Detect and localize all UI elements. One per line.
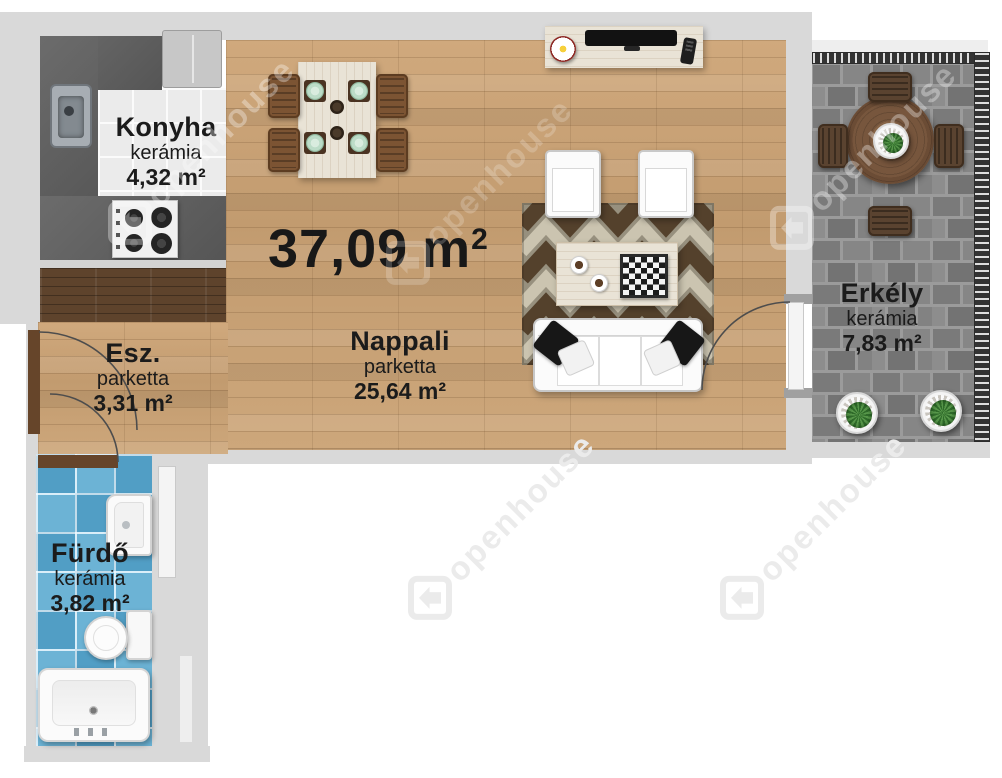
- total-area-unit: m: [422, 219, 471, 279]
- room-floor-type: kerámia: [20, 568, 160, 590]
- serving-bowl: [330, 100, 344, 114]
- stove-burner: [151, 233, 172, 254]
- plant-leaves: [930, 400, 956, 426]
- plant-leaves: [883, 133, 903, 153]
- room-floor-type: parketta: [63, 368, 203, 390]
- room-label-konyha: Konyha kerámia 4,32 m²: [96, 112, 236, 190]
- tv: [585, 30, 677, 46]
- wall-kitchen-bottom: [40, 260, 228, 268]
- openhouse-house-icon: [720, 576, 764, 620]
- room-label-furdo: Fürdő kerámia 3,82 m²: [20, 538, 160, 616]
- dining-chair: [268, 128, 300, 172]
- plant-leaves: [846, 402, 872, 428]
- sofa-seat-cushion: [599, 336, 641, 386]
- stove-burner: [151, 207, 172, 228]
- floor-plan: 37,09m2 Konyha kerámia 4,32 m² Nappali p…: [0, 0, 1002, 778]
- sofa: [533, 318, 703, 392]
- stove-burner: [125, 234, 143, 252]
- coffee-cup: [590, 274, 608, 292]
- plate: [350, 134, 368, 152]
- balcony-door-sill: [788, 302, 804, 390]
- bathroom-door-leaf: [38, 455, 118, 468]
- room-area: 3,31 m²: [63, 391, 203, 417]
- potted-plant-left: [836, 392, 878, 434]
- armchair-left: [545, 150, 601, 218]
- balcony-chair-east: [934, 124, 964, 168]
- wall-balcony-bottom: [810, 442, 990, 458]
- plate: [350, 82, 368, 100]
- room-name: Nappali: [330, 326, 470, 356]
- balcony-railing-right: [974, 52, 990, 442]
- tv-stand: [624, 46, 640, 51]
- dining-chair: [376, 128, 408, 172]
- table-plant-pot: [873, 123, 909, 159]
- stove-knobs: [116, 209, 120, 253]
- hallway-cabinet: [40, 268, 228, 322]
- bathtub-tap: [74, 728, 110, 736]
- room-floor-type: kerámia: [96, 142, 236, 164]
- plate: [306, 82, 324, 100]
- bathroom-wall-niche: [180, 656, 192, 742]
- toilet-bowl: [84, 616, 128, 660]
- room-name: Konyha: [96, 112, 236, 142]
- balcony-chair-south: [868, 206, 912, 236]
- entrance-door-leaf: [28, 330, 40, 434]
- balcony-chair-north: [868, 72, 912, 102]
- room-area: 3,82 m²: [20, 591, 160, 617]
- wall-left-upper: [0, 12, 40, 324]
- total-area-label: 37,09m2: [268, 218, 489, 280]
- room-label-esz: Esz. parketta 3,31 m²: [63, 338, 203, 416]
- room-floor-type: parketta: [330, 356, 470, 378]
- wall-livingroom-right-lower: [786, 392, 812, 450]
- room-name: Fürdő: [20, 538, 160, 568]
- wall-balcony-top: [812, 40, 988, 52]
- room-label-nappali: Nappali parketta 25,64 m²: [330, 326, 470, 404]
- bathtub-drain: [89, 706, 98, 715]
- stove-burner: [125, 209, 143, 227]
- balcony-chair-west: [818, 124, 848, 168]
- kitchen-sink: [50, 84, 92, 148]
- room-floor-type: kerámia: [812, 308, 952, 330]
- dining-chair: [376, 74, 408, 118]
- wall-livingroom-bottom: [208, 450, 812, 464]
- bathtub: [38, 668, 150, 742]
- room-area: 4,32 m²: [96, 165, 236, 191]
- fridge: [162, 30, 222, 88]
- wall-livingroom-right-upper: [786, 40, 812, 302]
- chessboard: [620, 254, 668, 298]
- armchair-right: [638, 150, 694, 218]
- flower-pot: [550, 36, 576, 62]
- bathroom-door-panel: [158, 466, 176, 578]
- room-area: 25,64 m²: [330, 379, 470, 405]
- coffee-cup: [570, 256, 588, 274]
- plate: [306, 134, 324, 152]
- balcony-railing-top: [812, 52, 986, 64]
- room-label-erkely: Erkély kerámia 7,83 m²: [812, 278, 952, 356]
- serving-bowl: [330, 126, 344, 140]
- openhouse-house-icon: [408, 576, 452, 620]
- total-area-value: 37,09: [268, 219, 408, 279]
- room-name: Erkély: [812, 278, 952, 308]
- stove: [112, 200, 178, 258]
- wall-bathroom-bottom: [24, 746, 210, 762]
- room-name: Esz.: [63, 338, 203, 368]
- potted-plant-right: [920, 390, 962, 432]
- room-area: 7,83 m²: [812, 331, 952, 357]
- toilet-tank: [126, 610, 152, 660]
- dining-chair: [268, 74, 300, 118]
- total-area-superscript: 2: [471, 223, 489, 256]
